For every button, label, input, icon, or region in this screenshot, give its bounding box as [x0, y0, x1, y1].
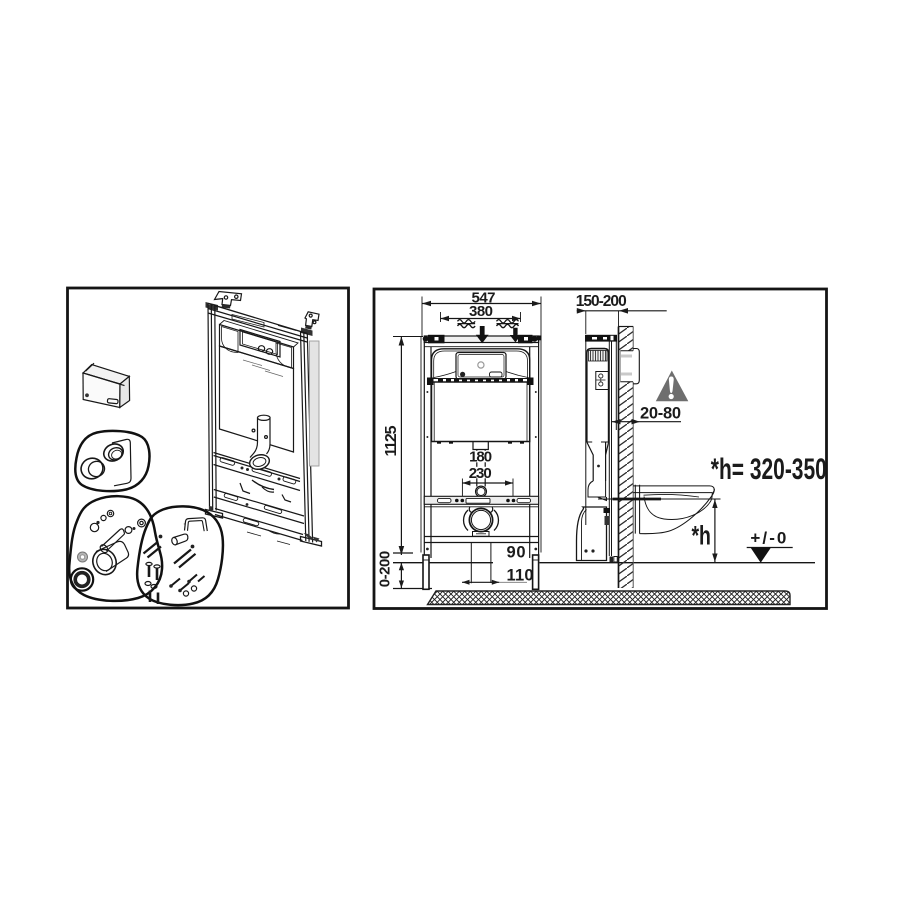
svg-text:90: 90	[507, 544, 526, 562]
svg-text:110: 110	[507, 567, 534, 585]
svg-text:+/-0: +/-0	[750, 529, 786, 548]
svg-text:20-80: 20-80	[640, 405, 681, 423]
svg-text:1125: 1125	[383, 425, 400, 456]
svg-text:230: 230	[469, 465, 492, 482]
svg-text:*h= 320-350: *h= 320-350	[711, 453, 827, 486]
svg-text:180: 180	[469, 449, 492, 466]
svg-text:0-200: 0-200	[377, 551, 394, 588]
svg-text:380: 380	[469, 303, 493, 320]
svg-text:*h: *h	[692, 520, 711, 550]
svg-text:150-200: 150-200	[576, 293, 627, 310]
